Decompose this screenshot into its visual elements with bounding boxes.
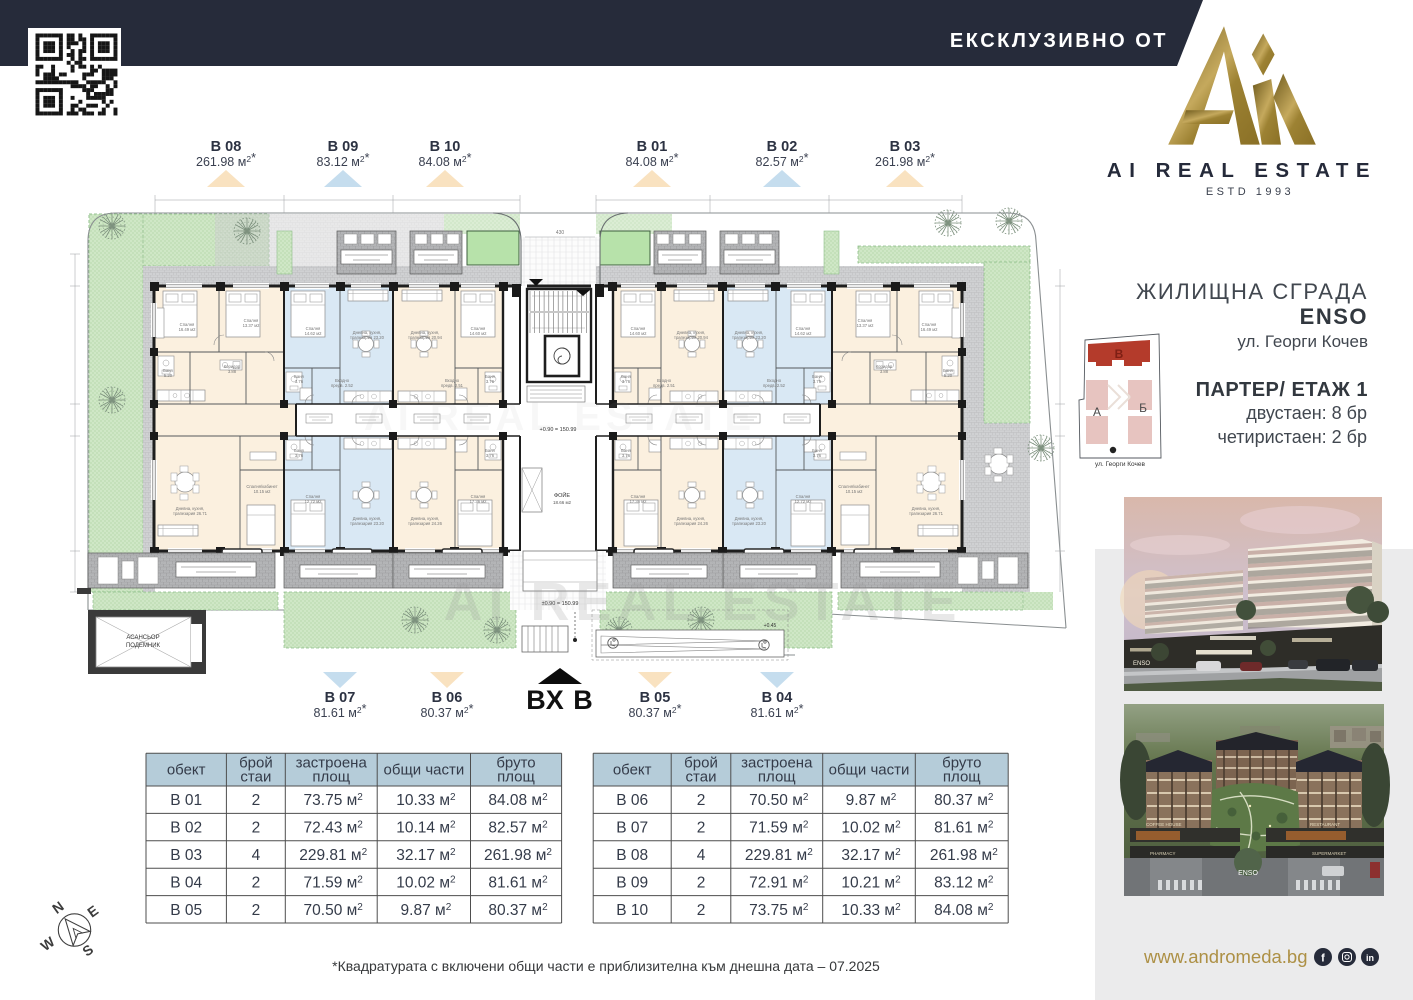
svg-text:4: 4 bbox=[252, 847, 261, 864]
svg-text:82.57 м2: 82.57 м2 bbox=[488, 820, 548, 837]
svg-text:трапезария 23.20: трапезария 23.20 bbox=[350, 521, 385, 526]
svg-text:площ: площ bbox=[758, 769, 796, 786]
svg-text:10.33 м2: 10.33 м2 bbox=[841, 902, 901, 919]
svg-text:14.62 м2: 14.62 м2 bbox=[795, 331, 813, 336]
svg-text:AI REAL ESTATE: AI REAL ESTATE bbox=[443, 572, 962, 632]
svg-text:PHARMACY: PHARMACY bbox=[1150, 851, 1176, 856]
svg-text:81.61 м2: 81.61 м2 bbox=[934, 820, 994, 837]
svg-text:трапезария 24.26: трапезария 24.26 bbox=[408, 521, 443, 526]
svg-text:3.88: 3.88 bbox=[228, 369, 237, 374]
svg-text:B 02: B 02 bbox=[170, 820, 202, 837]
svg-text:9.87 м2: 9.87 м2 bbox=[846, 792, 897, 809]
svg-text:B 03: B 03 bbox=[890, 139, 921, 155]
svg-text:трапезария 20.94: трапезария 20.94 bbox=[674, 335, 709, 340]
svg-text:трапезария 23.20: трапезария 23.20 bbox=[350, 335, 385, 340]
svg-text:72.91 м2: 72.91 м2 bbox=[749, 874, 809, 891]
svg-text:9.87 м2: 9.87 м2 bbox=[401, 902, 452, 919]
svg-text:B 01: B 01 bbox=[637, 139, 668, 155]
svg-text:3.76: 3.76 bbox=[295, 453, 304, 458]
svg-text:2: 2 bbox=[252, 874, 261, 891]
svg-text:261.98 м2: 261.98 м2 bbox=[484, 847, 552, 864]
svg-text:B 08: B 08 bbox=[616, 847, 648, 864]
svg-text:80.37 м2: 80.37 м2 bbox=[488, 902, 548, 919]
svg-text:10.02 м2: 10.02 м2 bbox=[396, 874, 456, 891]
svg-text:3.76: 3.76 bbox=[813, 379, 822, 384]
svg-text:3.76: 3.76 bbox=[486, 453, 495, 458]
svg-text:261.98 м2: 261.98 м2 bbox=[930, 847, 998, 864]
svg-text:f: f bbox=[1321, 953, 1325, 965]
svg-text:ЕКСКЛУЗИВНО ОТ: ЕКСКЛУЗИВНО ОТ bbox=[950, 30, 1168, 52]
svg-text:ВХ В: ВХ В bbox=[526, 685, 593, 715]
svg-text:229.81 м2: 229.81 м2 bbox=[745, 847, 813, 864]
svg-text:B 06: B 06 bbox=[432, 690, 463, 706]
svg-text:3.76: 3.76 bbox=[622, 453, 631, 458]
svg-text:32.17 м2: 32.17 м2 bbox=[841, 847, 901, 864]
svg-text:B 03: B 03 bbox=[170, 847, 202, 864]
svg-text:B 05: B 05 bbox=[640, 690, 671, 706]
svg-text:10.21 м2: 10.21 м2 bbox=[841, 874, 901, 891]
svg-text:общи части: общи части bbox=[829, 762, 910, 779]
svg-text:17.36 м2: 17.36 м2 bbox=[630, 499, 648, 504]
svg-text:AI REAL ESTATE: AI REAL ESTATE bbox=[1107, 159, 1377, 182]
svg-text:3.88: 3.88 bbox=[880, 369, 889, 374]
svg-text:трапезария 26.71: трапезария 26.71 bbox=[173, 511, 208, 516]
svg-text:B 07: B 07 bbox=[325, 690, 356, 706]
svg-text:12.72 м2: 12.72 м2 bbox=[305, 499, 323, 504]
svg-text:17.36 м2: 17.36 м2 bbox=[470, 499, 488, 504]
svg-text:предв. 2.52: предв. 2.52 bbox=[331, 383, 354, 388]
svg-text:13.37 м2: 13.37 м2 bbox=[857, 323, 875, 328]
svg-text:B 10: B 10 bbox=[430, 139, 461, 155]
svg-text:предв. 2.52: предв. 2.52 bbox=[763, 383, 786, 388]
svg-text:RESTAURANT: RESTAURANT bbox=[1310, 822, 1340, 827]
svg-text:А: А bbox=[1093, 405, 1101, 419]
svg-text:10.15 м2: 10.15 м2 bbox=[846, 489, 864, 494]
svg-text:ЖИЛИЩНА СГРАДА: ЖИЛИЩНА СГРАДА bbox=[1136, 279, 1368, 304]
svg-text:B 08: B 08 bbox=[211, 139, 242, 155]
svg-text:четиристаен: 2 бр: четиристаен: 2 бр bbox=[1218, 427, 1368, 447]
svg-text:5.20: 5.20 bbox=[944, 373, 953, 378]
svg-text:обект: обект bbox=[613, 762, 652, 779]
svg-text:81.61 м2: 81.61 м2 bbox=[488, 874, 548, 891]
svg-text:430: 430 bbox=[556, 230, 565, 236]
svg-text:трапезария 24.26: трапезария 24.26 bbox=[674, 521, 709, 526]
svg-text:70.50 м2: 70.50 м2 bbox=[304, 902, 364, 919]
svg-text:ФОЙЕ: ФОЙЕ bbox=[554, 491, 570, 499]
svg-text:2: 2 bbox=[697, 820, 706, 837]
svg-text:2: 2 bbox=[697, 792, 706, 809]
svg-text:ENSO: ENSO bbox=[1300, 304, 1368, 329]
svg-text:B 04: B 04 bbox=[170, 874, 202, 891]
svg-text:предв. 2.51: предв. 2.51 bbox=[441, 383, 464, 388]
svg-text:4: 4 bbox=[697, 847, 706, 864]
svg-text:80.37 м2: 80.37 м2 bbox=[934, 792, 994, 809]
svg-text:B 01: B 01 bbox=[170, 792, 202, 809]
svg-text:B 04: B 04 bbox=[762, 690, 793, 706]
svg-text:16.49 м2: 16.49 м2 bbox=[921, 327, 939, 332]
svg-text:10.14 м2: 10.14 м2 bbox=[396, 820, 456, 837]
svg-text:B 09: B 09 bbox=[328, 139, 359, 155]
svg-text:3.76: 3.76 bbox=[813, 453, 822, 458]
svg-text:ENSO: ENSO bbox=[1133, 661, 1150, 667]
svg-text:3.76: 3.76 bbox=[295, 379, 304, 384]
svg-text:www.andromeda.bg: www.andromeda.bg bbox=[1143, 946, 1308, 967]
svg-text:2: 2 bbox=[697, 874, 706, 891]
svg-text:73.75 м2: 73.75 м2 bbox=[749, 902, 809, 919]
svg-text:10.33 м2: 10.33 м2 bbox=[396, 792, 456, 809]
svg-text:2: 2 bbox=[697, 902, 706, 919]
svg-text:5.20: 5.20 bbox=[164, 373, 173, 378]
svg-text:стаи: стаи bbox=[240, 769, 271, 786]
svg-text:83.12 м2: 83.12 м2 bbox=[934, 874, 994, 891]
svg-text:АСАНСЬОР: АСАНСЬОР bbox=[126, 635, 159, 641]
svg-text:13.37 м2: 13.37 м2 bbox=[243, 323, 261, 328]
svg-text:общи части: общи части bbox=[384, 762, 465, 779]
svg-text:*Квадратурата с включени общи: *Квадратурата с включени общи части е пр… bbox=[332, 958, 880, 974]
svg-text:2: 2 bbox=[252, 902, 261, 919]
svg-text:SUPERMARKET: SUPERMARKET bbox=[1312, 851, 1347, 856]
svg-text:ул. Георги Кочев: ул. Георги Кочев bbox=[1095, 461, 1146, 468]
svg-text:73.75 м2: 73.75 м2 bbox=[304, 792, 364, 809]
svg-text:ESTD 1993: ESTD 1993 bbox=[1206, 186, 1294, 198]
svg-text:14.60 м2: 14.60 м2 bbox=[630, 331, 648, 336]
svg-text:10.15 м2: 10.15 м2 bbox=[254, 489, 272, 494]
svg-text:71.59 м2: 71.59 м2 bbox=[749, 820, 809, 837]
svg-text:AI REAL ESTATE: AI REAL ESTATE bbox=[364, 395, 756, 439]
svg-text:3.76: 3.76 bbox=[622, 379, 631, 384]
svg-text:ПОДЕМНИК: ПОДЕМНИК bbox=[126, 643, 161, 649]
svg-text:трапезария 20.94: трапезария 20.94 bbox=[408, 335, 443, 340]
svg-text:предв. 2.51: предв. 2.51 bbox=[653, 383, 676, 388]
svg-text:14.62 м2: 14.62 м2 bbox=[305, 331, 323, 336]
svg-text:площ: площ bbox=[497, 769, 535, 786]
svg-text:ПАРТЕР/ ЕТАЖ 1: ПАРТЕР/ ЕТАЖ 1 bbox=[1196, 379, 1368, 401]
svg-text:12.72 м2: 12.72 м2 bbox=[795, 499, 813, 504]
svg-text:16.49 м2: 16.49 м2 bbox=[179, 327, 197, 332]
svg-text:84.08 м2: 84.08 м2 bbox=[488, 792, 548, 809]
svg-text:Б: Б bbox=[1139, 401, 1147, 415]
svg-text:ул. Георги Кочев: ул. Георги Кочев bbox=[1237, 332, 1368, 351]
svg-text:стаи: стаи bbox=[686, 769, 717, 786]
svg-text:B 02: B 02 bbox=[767, 139, 798, 155]
svg-text:площ: площ bbox=[943, 769, 981, 786]
svg-text:84.08 м2: 84.08 м2 bbox=[934, 902, 994, 919]
svg-text:двустаен: 8 бр: двустаен: 8 бр bbox=[1246, 403, 1367, 423]
svg-text:32.17 м2: 32.17 м2 bbox=[396, 847, 456, 864]
svg-text:трапезария 23.20: трапезария 23.20 bbox=[732, 521, 767, 526]
svg-text:B 05: B 05 bbox=[170, 902, 202, 919]
svg-text:обект: обект bbox=[167, 762, 206, 779]
svg-text:B 09: B 09 bbox=[616, 874, 648, 891]
svg-text:2: 2 bbox=[252, 792, 261, 809]
svg-text:B 10: B 10 bbox=[616, 902, 648, 919]
svg-text:72.43 м2: 72.43 м2 bbox=[304, 820, 364, 837]
svg-text:14.60 м2: 14.60 м2 bbox=[470, 331, 488, 336]
svg-text:ENSO: ENSO bbox=[1238, 870, 1258, 877]
svg-text:B 07: B 07 bbox=[616, 820, 648, 837]
svg-text:18.66 м2: 18.66 м2 bbox=[553, 500, 572, 505]
svg-text:70.50 м2: 70.50 м2 bbox=[749, 792, 809, 809]
svg-text:71.59 м2: 71.59 м2 bbox=[304, 874, 364, 891]
svg-text:10.02 м2: 10.02 м2 bbox=[841, 820, 901, 837]
svg-text:трапезария 23.20: трапезария 23.20 bbox=[732, 335, 767, 340]
svg-text:2: 2 bbox=[252, 820, 261, 837]
svg-text:B 06: B 06 bbox=[616, 792, 648, 809]
svg-text:COFFEE HOUSE: COFFEE HOUSE bbox=[1146, 822, 1182, 827]
svg-text:В: В bbox=[1115, 347, 1124, 361]
svg-text:площ: площ bbox=[312, 769, 350, 786]
svg-text:3.76: 3.76 bbox=[486, 379, 495, 384]
svg-text:in: in bbox=[1366, 953, 1374, 963]
svg-text:трапезария 26.71: трапезария 26.71 bbox=[909, 511, 944, 516]
svg-text:229.81 м2: 229.81 м2 bbox=[299, 847, 367, 864]
